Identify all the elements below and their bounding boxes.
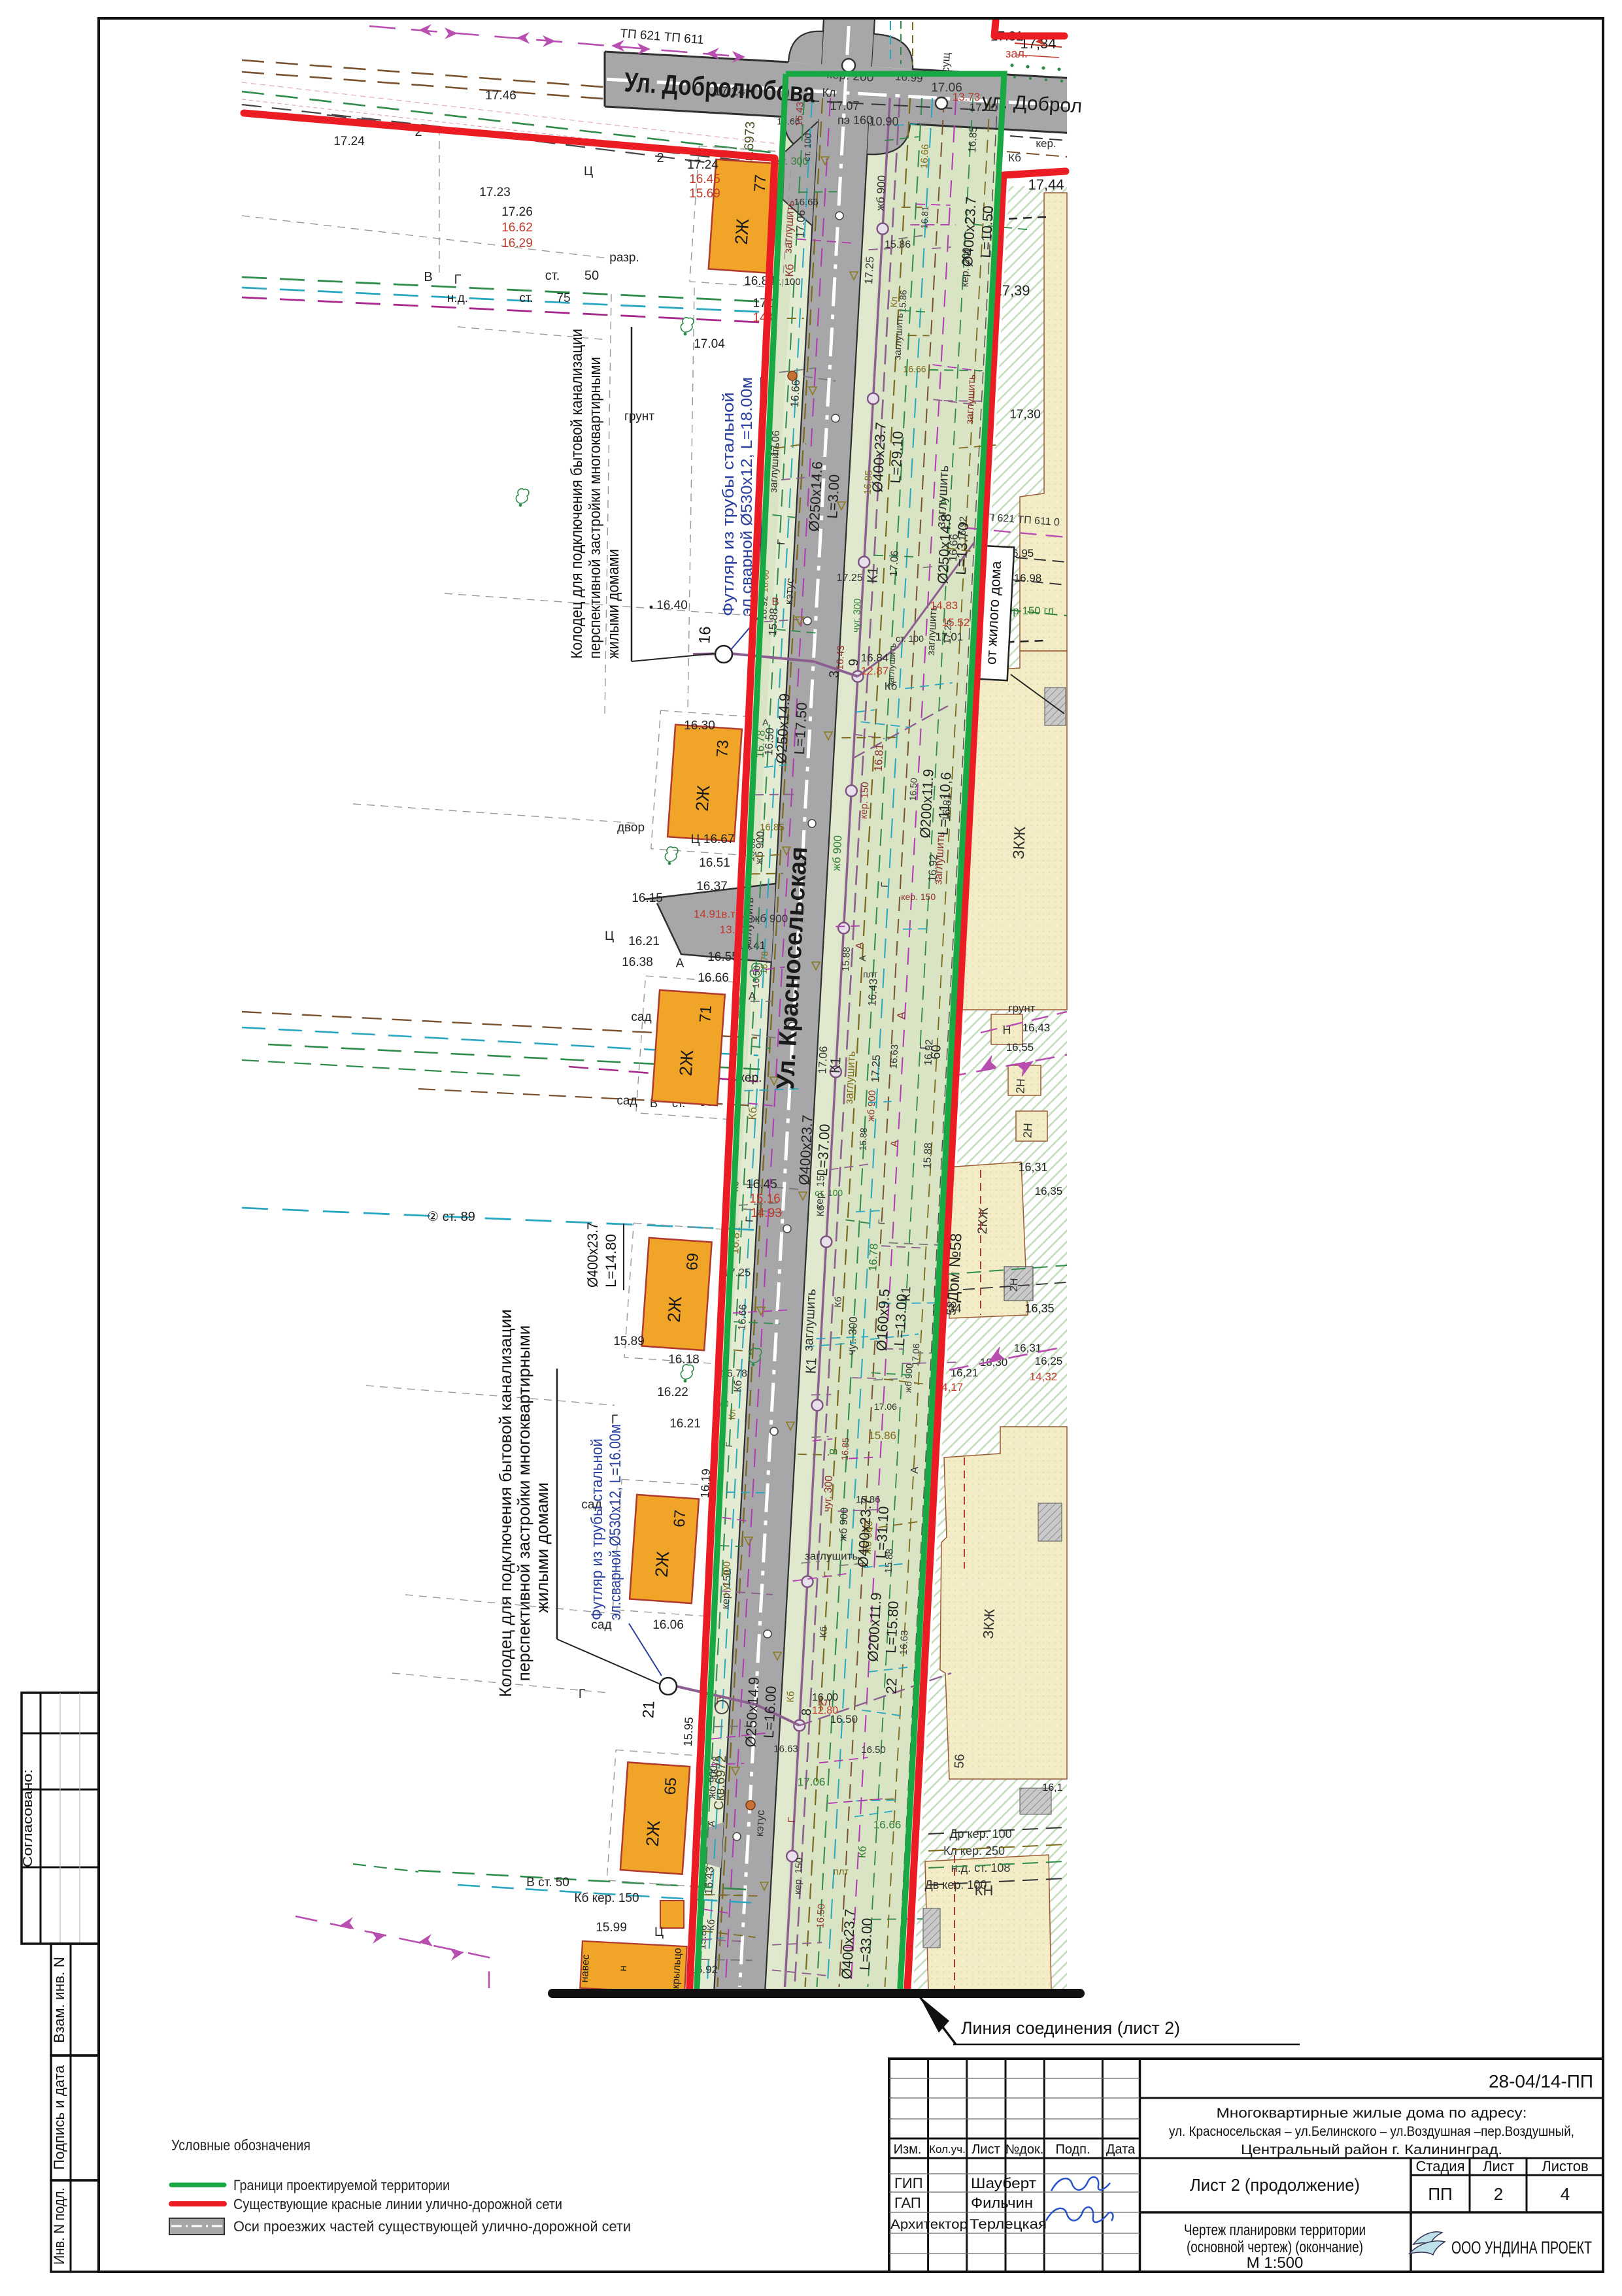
- svg-text:L=15.80: L=15.80: [883, 1601, 902, 1654]
- svg-text:жб 900: жб 900: [830, 835, 844, 871]
- svg-text:сад: сад: [617, 1094, 637, 1108]
- svg-text:Кб: Кб: [885, 680, 898, 693]
- svg-text:Подпись и дата: Подпись и дата: [51, 2065, 67, 2170]
- svg-text:ГИП: ГИП: [894, 2175, 923, 2191]
- svg-text:16: 16: [696, 626, 714, 644]
- svg-text:16.29: 16.29: [501, 237, 533, 250]
- svg-text:17.24: 17.24: [333, 135, 365, 148]
- svg-text:В: В: [771, 595, 779, 608]
- svg-text:крыльцо: крыльцо: [670, 1948, 683, 1989]
- svg-text:2Ж: 2Ж: [643, 1820, 664, 1847]
- svg-text:17.25: 17.25: [862, 256, 876, 284]
- svg-text:16,31: 16,31: [1014, 1342, 1042, 1354]
- svg-text:ст.: ст.: [519, 291, 533, 305]
- svg-text:Г: Г: [786, 1816, 798, 1823]
- svg-text:15.99: 15.99: [596, 1921, 627, 1935]
- svg-text:кер. 150: кер. 150: [858, 782, 871, 820]
- svg-text:В ст. 50: В ст. 50: [526, 1876, 569, 1889]
- svg-text:L=29.10: L=29.10: [887, 431, 906, 484]
- svg-text:жилыми домами: жилыми домами: [605, 549, 622, 659]
- svg-text:L=31.10: L=31.10: [873, 1506, 892, 1559]
- svg-text:56: 56: [952, 1754, 967, 1769]
- svg-text:15.88: 15.88: [840, 946, 853, 971]
- svg-text:17.04: 17.04: [694, 337, 725, 351]
- svg-text:16.85: 16.85: [839, 1437, 851, 1461]
- svg-text:Изм.: Изм.: [894, 2142, 922, 2157]
- svg-text:ул. Красносельская – ул.Белинс: ул. Красносельская – ул.Белинского – ул.…: [1169, 2124, 1574, 2139]
- svg-text:67: 67: [671, 1509, 690, 1528]
- svg-text:73: 73: [713, 739, 732, 758]
- svg-text:Шауберт: Шауберт: [971, 2175, 1036, 2191]
- svg-text:16.43: 16.43: [834, 645, 847, 670]
- svg-text:15.86: 15.86: [868, 1429, 896, 1442]
- svg-text:L=17.50: L=17.50: [791, 702, 810, 755]
- svg-text:Кб: Кб: [1008, 152, 1021, 164]
- svg-text:Инв. N подл.: Инв. N подл.: [51, 2188, 67, 2265]
- svg-text:71: 71: [696, 1005, 715, 1023]
- svg-text:н: н: [618, 1965, 629, 1972]
- svg-text:L=14.80: L=14.80: [603, 1234, 619, 1288]
- svg-text:16.43: 16.43: [866, 978, 879, 1007]
- svg-text:16.21: 16.21: [669, 1417, 701, 1431]
- svg-text:Кб кер. 150: Кб кер. 150: [574, 1891, 639, 1905]
- svg-text:17.25: 17.25: [837, 573, 863, 584]
- svg-text:А: А: [749, 990, 756, 1002]
- svg-text:17.24: 17.24: [714, 85, 745, 99]
- svg-text:L=33.00: L=33.00: [856, 1918, 875, 1971]
- svg-text:15.88: 15.88: [922, 1142, 934, 1169]
- svg-text:16,1: 16,1: [1042, 1782, 1062, 1793]
- svg-text:75: 75: [556, 291, 570, 305]
- svg-text:14.83: 14.83: [930, 599, 958, 612]
- svg-text:16.37: 16.37: [696, 880, 728, 893]
- svg-text:16.50: 16.50: [815, 1903, 827, 1928]
- svg-text:ст. 100: ст. 100: [896, 633, 924, 644]
- svg-text:69: 69: [683, 1252, 702, 1271]
- svg-text:L=11.10,6: L=11.10,6: [934, 772, 954, 836]
- svg-text:65: 65: [662, 1777, 681, 1796]
- svg-text:2Ж: 2Ж: [732, 218, 753, 245]
- svg-text:Кб: Кб: [832, 1297, 843, 1308]
- svg-text:М 1:500: М 1:500: [1247, 2254, 1304, 2272]
- svg-text:Лист 2 (продолжение): Лист 2 (продолжение): [1190, 2175, 1360, 2195]
- svg-text:16,25: 16,25: [1035, 1355, 1063, 1367]
- svg-text:Граници проектируемой территор: Граници проектируемой территории: [233, 2177, 450, 2193]
- svg-text:Согласовано:: Согласовано:: [21, 1769, 35, 1867]
- svg-text:кер.: кер.: [739, 1071, 762, 1085]
- svg-text:Ц: Ц: [605, 929, 614, 943]
- svg-text:16.81: 16.81: [919, 206, 930, 229]
- svg-text:Ø400х23.7: Ø400х23.7: [584, 1222, 601, 1288]
- svg-text:② ст. 89: ② ст. 89: [427, 1210, 475, 1224]
- svg-text:н.д.: н.д.: [447, 291, 468, 305]
- svg-text:50: 50: [584, 269, 599, 283]
- svg-text:А: А: [857, 954, 868, 961]
- svg-text:2Ж: 2Ж: [692, 784, 714, 812]
- svg-text:Кл: Кл: [822, 86, 836, 99]
- svg-text:Кб: Кб: [785, 1691, 797, 1703]
- svg-text:17.23: 17.23: [479, 186, 511, 199]
- svg-text:двор: двор: [617, 821, 645, 835]
- svg-text:жб 900: жб 900: [866, 1090, 878, 1122]
- svg-text:ст.: ст.: [545, 269, 560, 283]
- svg-text:Оси проезжих частей существующ: Оси проезжих частей существующей улично-…: [233, 2218, 631, 2235]
- svg-text:16.40: 16.40: [656, 599, 688, 612]
- svg-text:Чертеж планировки территории: Чертеж планировки территории: [1184, 2221, 1366, 2239]
- svg-text:17.07: 17.07: [830, 99, 859, 112]
- svg-text:жб 900: жб 900: [874, 175, 888, 211]
- svg-text:Г: Г: [879, 882, 890, 888]
- svg-text:60: 60: [928, 1044, 943, 1059]
- svg-text:Фильчин: Фильчин: [971, 2195, 1033, 2211]
- svg-text:2Ж: 2Ж: [676, 1049, 698, 1076]
- svg-text:16.18: 16.18: [668, 1353, 700, 1367]
- svg-text:16.66: 16.66: [737, 1304, 749, 1331]
- svg-text:12.87: 12.87: [861, 665, 889, 677]
- svg-text:2Н: 2Н: [1008, 1278, 1020, 1291]
- svg-text:15.52: 15.52: [942, 616, 970, 629]
- svg-text:чуг. 300: чуг. 300: [822, 1475, 835, 1512]
- svg-text:17.01: 17.01: [936, 631, 964, 643]
- svg-text:кэтус: кэтус: [783, 577, 796, 605]
- svg-text:перспективной застройки многок: перспективной застройки многоквартирными: [586, 357, 604, 659]
- svg-text:16.45: 16.45: [746, 1178, 777, 1191]
- svg-text:2КЖ: 2КЖ: [975, 1206, 991, 1235]
- svg-text:К1: К1: [826, 1056, 843, 1073]
- svg-text:2: 2: [656, 151, 664, 165]
- svg-text:Ц: Ц: [654, 1925, 664, 1939]
- svg-text:ЗКЖ: ЗКЖ: [1010, 826, 1030, 860]
- svg-text:16,43: 16,43: [1022, 1022, 1051, 1034]
- svg-text:15.69: 15.69: [689, 187, 720, 201]
- svg-text:Кб: Кб: [818, 1626, 830, 1638]
- svg-text:Г: Г: [918, 1043, 930, 1050]
- svg-text:15.16: 15.16: [749, 1192, 781, 1206]
- svg-text:16.63: 16.63: [888, 1044, 901, 1069]
- svg-text:Кб: Кб: [732, 1380, 744, 1392]
- svg-text:Дата: Дата: [1106, 2142, 1136, 2157]
- svg-text:16,55: 16,55: [1006, 1041, 1034, 1054]
- svg-text:16.66: 16.66: [794, 197, 819, 208]
- svg-text:Кб: Кб: [746, 1106, 759, 1120]
- svg-text:2Ж: 2Ж: [664, 1295, 686, 1323]
- svg-text:К1: К1: [802, 1357, 819, 1374]
- svg-text:жб 900: жб 900: [903, 1363, 915, 1393]
- svg-text:заглушить: заглушить: [805, 1550, 858, 1563]
- svg-text:сад: сад: [631, 1010, 651, 1024]
- svg-text:А: А: [888, 1140, 900, 1147]
- svg-text:№док.: №док.: [1005, 2142, 1044, 2157]
- svg-text:Ц: Ц: [584, 165, 593, 178]
- svg-text:16.15: 16.15: [632, 891, 663, 905]
- svg-text:16.22: 16.22: [657, 1386, 688, 1399]
- svg-text:17.06: 17.06: [888, 550, 901, 577]
- svg-text:17,30: 17,30: [1009, 408, 1041, 422]
- svg-text:Архитектор: Архитектор: [890, 2218, 968, 2232]
- svg-text:кэтус: кэтус: [753, 1809, 767, 1837]
- svg-text:14.93: 14.93: [751, 1206, 782, 1220]
- svg-text:L=37.00: L=37.00: [814, 1123, 833, 1176]
- svg-text:чуг. 300: чуг. 300: [851, 598, 864, 633]
- svg-text:3: 3: [827, 671, 842, 678]
- svg-text:2: 2: [1494, 2184, 1503, 2204]
- svg-text:16,35: 16,35: [1035, 1185, 1063, 1197]
- svg-text:16.66: 16.66: [903, 364, 926, 374]
- svg-text:жб 900: жб 900: [837, 1507, 851, 1541]
- svg-text:Кб: Кб: [783, 263, 796, 277]
- svg-text:Скв.6972: Скв.6972: [712, 1755, 729, 1810]
- svg-text:17.06: 17.06: [874, 1401, 897, 1412]
- svg-text:16.66: 16.66: [788, 379, 802, 407]
- svg-text:жилыми домами: жилыми домами: [532, 1482, 552, 1613]
- svg-text:21: 21: [639, 1701, 658, 1719]
- svg-text:разр.: разр.: [609, 251, 639, 265]
- svg-text:16.21: 16.21: [628, 935, 660, 948]
- svg-text:ст. 100: ст. 100: [815, 1188, 843, 1198]
- svg-text:16.85: 16.85: [967, 126, 979, 153]
- svg-text:2Н: 2Н: [1021, 1123, 1034, 1139]
- svg-text:Ц 16.67: Ц 16.67: [691, 833, 735, 846]
- svg-text:16.51: 16.51: [699, 856, 730, 870]
- svg-text:16.66: 16.66: [698, 971, 729, 985]
- svg-text:Лист: Лист: [1483, 2158, 1514, 2174]
- svg-text:А: А: [909, 1466, 921, 1474]
- svg-text:А: А: [895, 1011, 908, 1020]
- svg-text:Стадия: Стадия: [1416, 2158, 1465, 2174]
- svg-text:16.30: 16.30: [684, 719, 715, 733]
- svg-text:12.80: 12.80: [812, 1705, 838, 1716]
- svg-text:16.66: 16.66: [919, 144, 931, 169]
- svg-text:кер.: кер.: [1036, 137, 1056, 150]
- svg-text:L=3.00: L=3.00: [824, 474, 843, 519]
- svg-text:2Н: 2Н: [1013, 1078, 1027, 1094]
- svg-text:17,44: 17,44: [1028, 176, 1064, 193]
- svg-text:16.81: 16.81: [872, 743, 886, 771]
- svg-text:Ø160х9.5: Ø160х9.5: [873, 1288, 893, 1352]
- svg-text:15.95: 15.95: [681, 1717, 696, 1747]
- svg-text:ЗКЖ: ЗКЖ: [980, 1608, 998, 1639]
- svg-text:Др кер. 100: Др кер. 100: [949, 1827, 1011, 1840]
- svg-text:зал.: зал.: [1005, 47, 1028, 60]
- svg-text:22: 22: [883, 1678, 900, 1695]
- svg-text:Центральный район г. Калинингр: Центральный район г. Калининград.: [1241, 2142, 1502, 2157]
- svg-text:17.24: 17.24: [687, 158, 718, 172]
- svg-text:(основной чертеж) (окончание): (основной чертеж) (окончание): [1187, 2238, 1363, 2256]
- svg-text:пэ 160: пэ 160: [837, 114, 873, 127]
- svg-text:чуг. 300: чуг. 300: [845, 1316, 860, 1356]
- svg-text:Условные обозначения: Условные обозначения: [171, 2137, 311, 2154]
- svg-text:L=16.00: L=16.00: [760, 1686, 779, 1739]
- svg-text:А: А: [706, 1820, 717, 1827]
- svg-text:грунт: грунт: [1008, 1002, 1035, 1014]
- svg-text:н.д. ст. 108: н.д. ст. 108: [951, 1861, 1011, 1874]
- svg-text:16.78: 16.78: [866, 1243, 880, 1271]
- svg-text:кер. 150: кер. 150: [792, 1857, 805, 1895]
- svg-text:4: 4: [1561, 2184, 1570, 2204]
- svg-text:Г: Г: [776, 539, 787, 545]
- svg-text:Футляр из трубы стальной: Футляр из трубы стальной: [720, 392, 737, 616]
- svg-text:Кб: Кб: [857, 1846, 869, 1858]
- svg-text:навес: навес: [579, 1954, 592, 1983]
- svg-text:16.00: 16.00: [812, 1692, 838, 1703]
- svg-text:плт: плт: [863, 969, 878, 979]
- svg-text:сущ: сущ: [939, 52, 953, 73]
- svg-text:Кл: Кл: [888, 297, 900, 308]
- svg-text:Колодец для подключения бытово: Колодец для подключения бытовой канализа…: [568, 329, 586, 659]
- svg-text:16.62: 16.62: [501, 221, 533, 235]
- svg-text:кер. 150: кер. 150: [901, 891, 936, 902]
- svg-text:16.50: 16.50: [907, 778, 919, 801]
- svg-text:15.89: 15.89: [613, 1335, 645, 1348]
- svg-text:16.45: 16.45: [689, 173, 720, 186]
- svg-text:Г: Г: [876, 1219, 887, 1225]
- svg-text:ПП: ПП: [1428, 2184, 1452, 2204]
- svg-text:К1: К1: [898, 1286, 913, 1302]
- svg-text:Лист: Лист: [972, 2142, 1000, 2157]
- svg-text:77: 77: [751, 174, 770, 193]
- svg-text:Г: Г: [724, 1442, 734, 1448]
- svg-text:Терлецкая: Терлецкая: [970, 2217, 1047, 2232]
- svg-text:Г: Г: [454, 273, 462, 287]
- svg-text:9: 9: [847, 659, 862, 667]
- svg-text:16.38: 16.38: [622, 956, 653, 969]
- svg-text:А: А: [676, 957, 684, 971]
- svg-text:16.84: 16.84: [861, 652, 889, 664]
- svg-text:16.66: 16.66: [873, 1818, 902, 1831]
- svg-text:А: А: [762, 717, 769, 727]
- svg-text:17.25: 17.25: [869, 1054, 883, 1082]
- svg-text:16.85: 16.85: [760, 822, 785, 833]
- svg-text:Футляр из трубы стальной: Футляр из трубы стальной: [588, 1439, 606, 1620]
- svg-text:14,32: 14,32: [1030, 1371, 1058, 1383]
- svg-text:ГАП: ГАП: [894, 2195, 921, 2211]
- svg-text:16.63: 16.63: [773, 1743, 798, 1754]
- svg-text:Подп.: Подп.: [1055, 2142, 1090, 2157]
- svg-text:Кл: Кл: [726, 1408, 737, 1420]
- svg-text:В: В: [424, 270, 432, 284]
- svg-text:перспективной застройки многок: перспективной застройки многоквартирными: [514, 1325, 533, 1682]
- svg-text:Колодец для подключения бытово: Колодец для подключения бытовой канализа…: [496, 1309, 515, 1697]
- svg-text:2Ж: 2Ж: [652, 1550, 673, 1578]
- svg-text:17.46: 17.46: [485, 89, 516, 103]
- svg-text:Линия соединения (лист 2): Линия соединения (лист 2): [961, 2018, 1180, 2038]
- svg-text:17.06: 17.06: [798, 1776, 826, 1788]
- svg-text:L=13.70: L=13.70: [953, 522, 972, 575]
- svg-text:16.50: 16.50: [861, 1744, 886, 1755]
- svg-text:16,31: 16,31: [1018, 1161, 1047, 1174]
- svg-text:А: А: [854, 942, 866, 950]
- svg-text:28-04/14-ПП: 28-04/14-ПП: [1489, 2071, 1593, 2091]
- svg-text:16.92: 16.92: [926, 854, 939, 882]
- svg-text:В: В: [828, 1448, 840, 1456]
- svg-text:16,35: 16,35: [1024, 1302, 1054, 1315]
- svg-text:Г: Г: [579, 1688, 585, 1701]
- svg-text:ООО УНДИНА ПРОЕКТ: ООО УНДИНА ПРОЕКТ: [1451, 2238, 1592, 2257]
- svg-text:Взам. инв. N: Взам. инв. N: [51, 1957, 67, 2043]
- svg-text:15.88: 15.88: [857, 1127, 869, 1151]
- svg-text:Листов: Листов: [1542, 2158, 1588, 2174]
- svg-text:17.26: 17.26: [501, 205, 533, 219]
- svg-text:плт: плт: [834, 1867, 849, 1878]
- svg-text:16.06: 16.06: [652, 1618, 684, 1632]
- svg-text:эл.сварной Ø530х12, L=16.00м: эл.сварной Ø530х12, L=16.00м: [607, 1424, 624, 1620]
- svg-text:Многоквартирные жилые дома по: Многоквартирные жилые дома по адресу:: [1217, 2106, 1527, 2121]
- svg-text:10.90: 10.90: [869, 115, 898, 128]
- svg-text:К1: К1: [864, 566, 881, 583]
- svg-text:Кол.уч.: Кол.уч.: [929, 2143, 966, 2155]
- svg-text:грунт: грунт: [624, 410, 654, 424]
- svg-text:Кл кер. 250: Кл кер. 250: [943, 1844, 1005, 1857]
- svg-text:Существующие красные линии ули: Существующие красные линии улично-дорожн…: [233, 2196, 562, 2212]
